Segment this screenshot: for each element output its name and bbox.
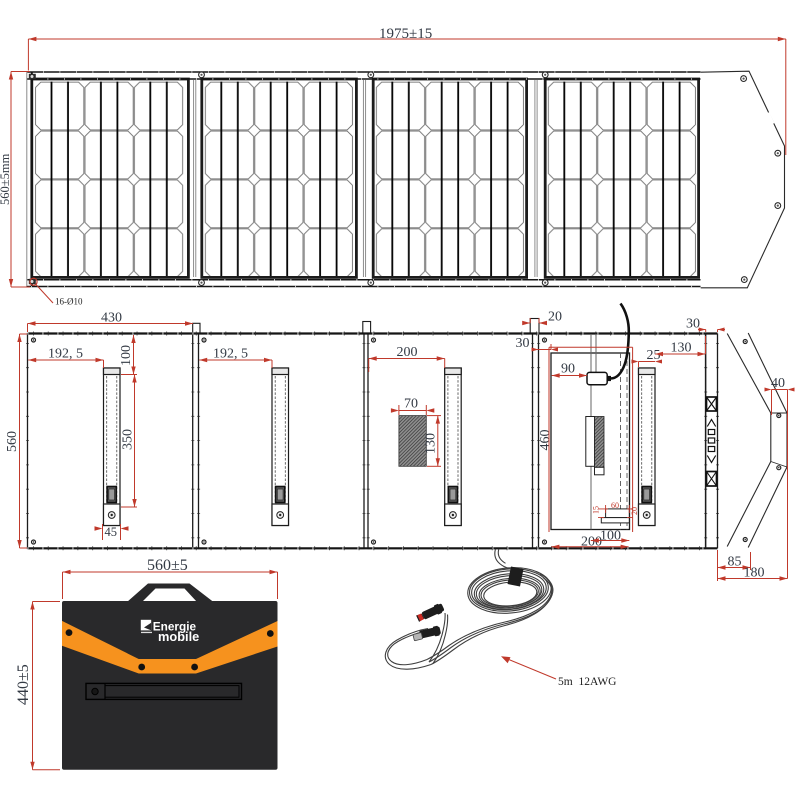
svg-text:100: 100: [119, 345, 134, 366]
svg-text:30: 30: [686, 317, 700, 332]
svg-text:70: 70: [404, 397, 418, 412]
svg-text:5m 12AWG: 5m 12AWG: [558, 676, 617, 688]
svg-text:15: 15: [592, 506, 601, 514]
svg-text:60: 60: [611, 501, 619, 510]
svg-text:130: 130: [671, 341, 692, 356]
svg-text:460: 460: [538, 430, 553, 451]
svg-text:100: 100: [600, 529, 621, 544]
svg-text:440±5: 440±5: [15, 664, 32, 705]
svg-text:192, 5: 192, 5: [213, 347, 248, 362]
svg-text:200: 200: [397, 345, 418, 360]
svg-text:130: 130: [424, 433, 439, 454]
svg-text:560: 560: [5, 431, 20, 452]
svg-text:20: 20: [630, 507, 639, 515]
svg-text:30: 30: [516, 336, 530, 351]
svg-text:90: 90: [561, 362, 575, 377]
svg-text:40: 40: [771, 376, 785, 391]
svg-text:1975±15: 1975±15: [379, 26, 432, 42]
svg-text:350: 350: [121, 429, 136, 450]
svg-text:560±5mm: 560±5mm: [0, 153, 12, 205]
svg-text:560±5: 560±5: [147, 557, 188, 574]
svg-text:16-Ø10: 16-Ø10: [55, 297, 83, 307]
svg-text:20: 20: [548, 310, 562, 325]
svg-text:mobile: mobile: [158, 629, 199, 644]
svg-text:192, 5: 192, 5: [48, 347, 83, 362]
svg-text:45: 45: [105, 525, 118, 539]
